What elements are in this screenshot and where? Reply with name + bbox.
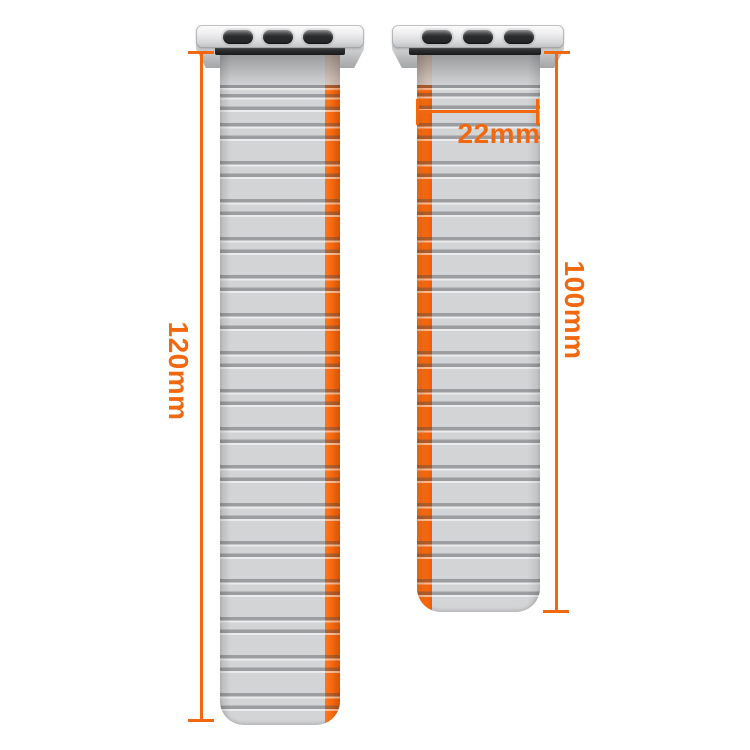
dimension-line-band-width <box>417 110 539 113</box>
dimension-tick-left-top <box>188 51 214 54</box>
dimension-tick-left-bottom <box>188 719 214 722</box>
right-adapter-pill-2-icon <box>463 30 493 44</box>
left-strap-body <box>220 55 340 725</box>
right-adapter-pill-1-icon <box>422 30 452 44</box>
dimension-tick-right-top <box>544 51 570 54</box>
product-dimension-diagram: 120mm 100mm 22mm <box>0 0 750 750</box>
dimension-label-left-length: 120mm <box>162 321 194 420</box>
left-adapter-pill-2-icon <box>263 30 293 44</box>
right-adapter-pill-3-icon <box>504 30 534 44</box>
dimension-label-right-length: 100mm <box>558 260 590 359</box>
left-adapter-pill-3-icon <box>303 30 333 44</box>
dimension-label-band-width: 22mm <box>458 118 541 150</box>
dimension-tick-width-left <box>416 99 419 125</box>
left-strap-side-shade <box>220 55 340 725</box>
dimension-tick-right-bottom <box>543 610 569 613</box>
left-adapter-pill-1-icon <box>223 30 253 44</box>
dimension-line-left-length <box>200 53 203 722</box>
